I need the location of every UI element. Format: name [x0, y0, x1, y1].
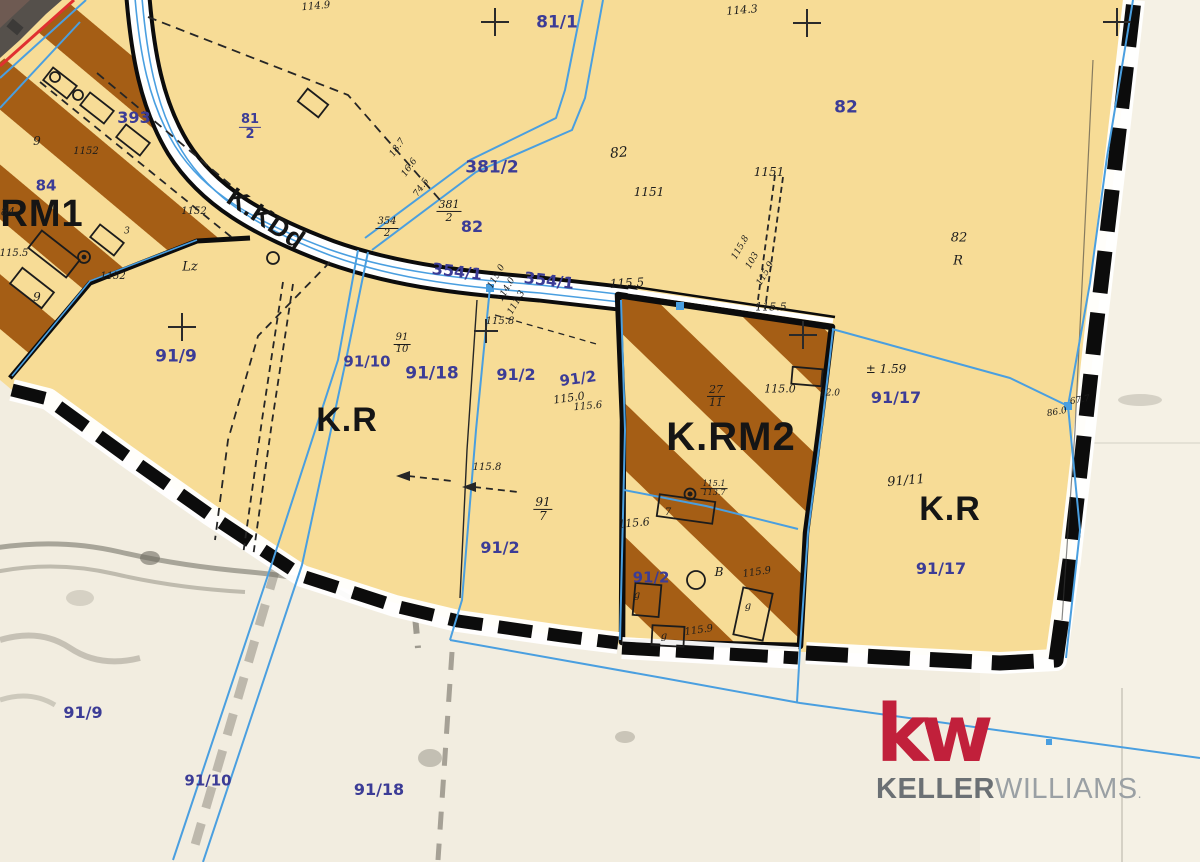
kw-logo-williams: WILLIAMS: [995, 773, 1138, 805]
map-annotation: 115.8: [486, 317, 515, 327]
map-annotation: 115.5: [755, 302, 787, 313]
parcel-number: 381/2: [465, 160, 519, 177]
keller-williams-logo: kw KELLERWILLIAMS.: [876, 704, 1142, 804]
map-annotation: 115.8: [473, 463, 502, 473]
map-annotation: 84: [1, 207, 15, 218]
zone-label-kr-east: K.R: [919, 492, 981, 526]
parcel-number: 354/1: [431, 261, 483, 283]
map-annotation: 115.0: [764, 384, 796, 395]
map-annotation: B: [715, 566, 724, 578]
parcel-fraction: 3542: [375, 217, 398, 239]
parcel-number: 81/1: [536, 15, 578, 32]
map-annotation: 16.6: [401, 157, 420, 179]
parcel-number: 91/9: [63, 705, 102, 721]
map-annotation: 1151: [634, 186, 665, 198]
kw-logo-name: KELLERWILLIAMS.: [876, 775, 1142, 804]
parcel-fraction: 812: [239, 113, 261, 141]
map-annotation: Lz: [182, 261, 197, 274]
map-annotation: R: [953, 255, 963, 268]
parcel-number: 91/10: [343, 355, 390, 370]
map-annotation: 115.9: [742, 566, 772, 580]
parcel-number: 91/2: [633, 571, 670, 586]
parcel-number: 91/10: [184, 774, 231, 789]
parcel-fraction: 9110: [394, 333, 411, 355]
parcel-fraction: 2711: [707, 384, 725, 408]
zoning-map: K.RM1K.KDdK.RK.RM2K.R81/182381/282393843…: [0, 0, 1200, 862]
parcel-number: 91/2: [496, 367, 535, 383]
parcel-number: 393: [117, 110, 150, 126]
map-annotation: 7: [665, 508, 671, 518]
map-annotation: 115.9: [756, 261, 777, 288]
zone-label-kr-west: K.R: [316, 403, 378, 437]
parcel-number: 91/9: [155, 349, 197, 366]
map-annotation: 82: [609, 145, 628, 161]
map-annotation: 86.0: [1046, 407, 1067, 419]
map-annotation: ± 1.59: [866, 363, 907, 375]
map-annotation: 12.0: [820, 390, 840, 399]
kw-logo-registered-mark: .: [1138, 785, 1142, 801]
map-annotation: 9: [33, 291, 41, 303]
map-annotation: 91/11: [887, 473, 925, 489]
parcel-fraction: 917: [533, 496, 552, 522]
parcel-number: 82: [834, 100, 858, 117]
map-annotation: 1151: [754, 166, 785, 178]
parcel-fraction: 115.1113.7: [701, 480, 728, 498]
parcel-fraction: 3812: [437, 199, 462, 223]
map-annotation: 103: [745, 251, 761, 270]
parcel-number: 91/17: [916, 561, 966, 577]
map-annotation: g: [745, 602, 751, 612]
map-annotation: 115.6: [573, 401, 602, 413]
map-annotation: 1152: [100, 272, 125, 282]
zone-label-krm2: K.RM2: [666, 417, 795, 457]
map-annotation: g: [634, 591, 640, 601]
map-annotation: g: [661, 632, 667, 642]
kw-logo-keller: KELLER: [876, 773, 995, 805]
parcel-number: 84: [36, 179, 57, 194]
map-annotation: 115.6: [618, 516, 650, 530]
map-annotation: 67.7: [1069, 395, 1090, 407]
parcel-number: 91/2: [480, 540, 519, 556]
map-annotation: 114.3: [726, 3, 758, 17]
map-annotation: 82: [951, 232, 968, 245]
kw-logo-mark: kw: [876, 704, 1142, 766]
parcel-number: 91/18: [405, 366, 459, 383]
map-annotation: 9: [33, 135, 41, 147]
parcel-number: 91/18: [354, 782, 404, 798]
map-annotation: 1152: [73, 147, 98, 157]
zone-label-kkdd-road: K.KDd: [222, 183, 310, 254]
parcel-number: 91/17: [871, 390, 921, 406]
parcel-number: 91/2: [559, 369, 598, 389]
map-annotation: 1152: [181, 207, 206, 217]
map-annotation: 74.5: [413, 177, 432, 199]
map-annotation: 18.7: [389, 137, 408, 159]
parcel-number: 82: [461, 219, 483, 235]
map-annotation: 3: [124, 228, 130, 237]
map-annotation: 114.9: [301, 1, 330, 13]
map-annotation: 115.5: [610, 276, 645, 290]
map-annotation: 115.9: [684, 624, 714, 638]
map-annotation: 115.5: [0, 249, 28, 259]
parcel-number: 354/1: [523, 270, 575, 292]
